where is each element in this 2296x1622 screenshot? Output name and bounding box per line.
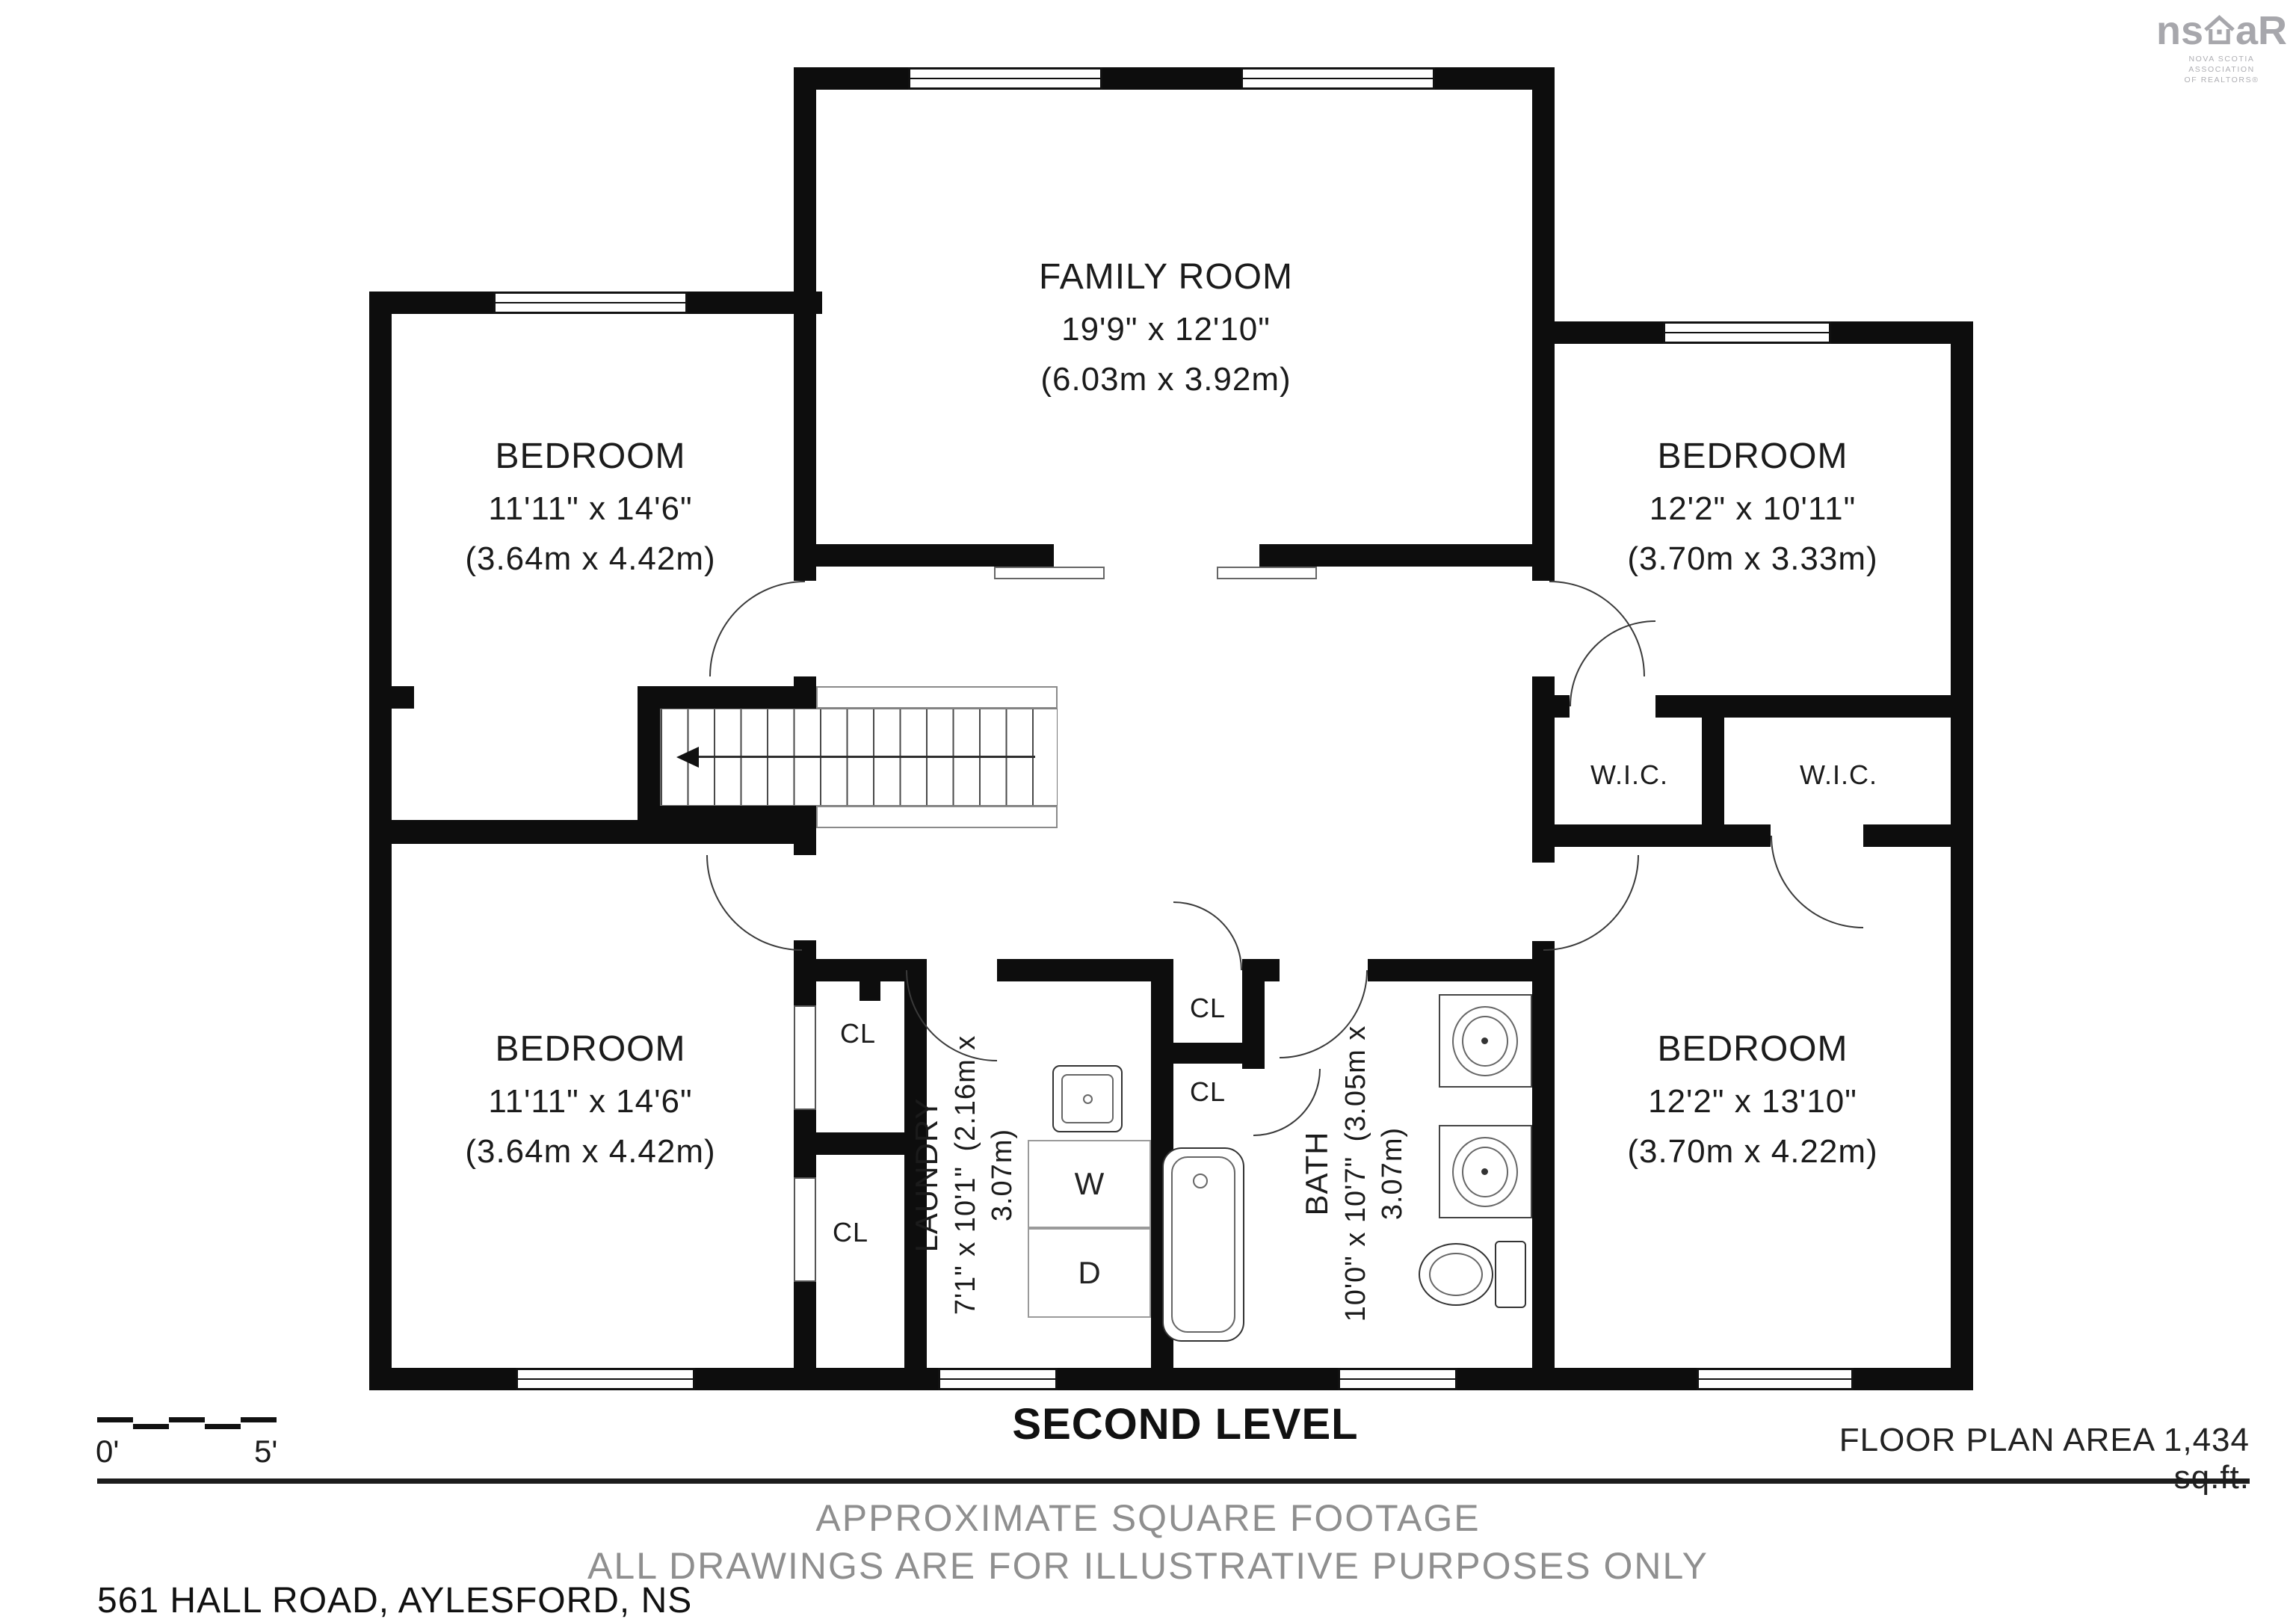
wall <box>997 959 1173 981</box>
nsar-logo: ns aR NOVA SCOTIA ASSOCIATION OF REALTOR… <box>2156 10 2287 86</box>
wall <box>369 686 414 709</box>
room-label-bedroom-top-right: BEDROOM 12'2" x 10'11" (3.70m x 3.33m) <box>1528 430 1977 585</box>
room-label-laundry: LAUNDRY 7'1" x 10'1" (2.16m x 3.07m) <box>907 1011 1019 1339</box>
floor-plan-page: W D FAMILY ROOM 19'9" x 12'10" (6.03m x … <box>0 0 2296 1622</box>
nsar-logo-brand: ns aR <box>2156 10 2287 51</box>
wall <box>1532 824 1771 847</box>
faucet-dot-icon <box>1481 1037 1488 1044</box>
window-icon <box>908 67 1102 90</box>
wall <box>1702 718 1724 824</box>
logo-subtext-2: OF REALTORS® <box>2156 75 2287 85</box>
drain-icon <box>1083 1094 1093 1104</box>
wall <box>369 1368 516 1390</box>
room-dim-metric: (3.70m x 4.22m) <box>1528 1127 1977 1177</box>
wall <box>1532 695 1570 718</box>
wall <box>794 1282 816 1390</box>
window-icon <box>1241 67 1435 90</box>
room-label-bath: BATH 10'0" x 10'7" (3.05m x 3.07m) <box>1297 1002 1416 1345</box>
toilet-tank-icon <box>1495 1241 1526 1308</box>
room-dim-imperial: 7'1" x 10'1" <box>950 1166 981 1315</box>
window-icon <box>1697 1368 1854 1390</box>
level-title: SECOND LEVEL <box>961 1399 1410 1449</box>
wall <box>638 686 816 709</box>
wall <box>1259 544 1555 567</box>
wall <box>1831 321 1973 344</box>
room-dim-metric: (3.64m x 4.42m) <box>366 534 815 585</box>
wic-right-label: W.I.C. <box>1741 759 1936 791</box>
room-label-family: FAMILY ROOM 19'9" x 12'10" (6.03m x 3.92… <box>867 250 1465 405</box>
scale-segment <box>241 1417 277 1422</box>
closet-label: CL <box>1173 993 1242 1024</box>
room-dim-imperial: 11'11" x 14'6" <box>366 484 815 534</box>
stair-direction-arrow <box>699 756 1035 758</box>
wall <box>794 544 1054 567</box>
cased-opening <box>994 567 1105 579</box>
room-dim-imperial: 10'0" x 10'7" <box>1340 1156 1371 1322</box>
closet-label: CL <box>815 1217 886 1248</box>
window-icon <box>1338 1368 1457 1390</box>
address-label: 561 HALL ROAD, AYLESFORD, NS <box>97 1580 692 1621</box>
room-dim-imperial: 11'11" x 14'6" <box>366 1077 815 1127</box>
room-dim-imperial: 19'9" x 12'10" <box>867 305 1465 355</box>
dryer-box: D <box>1028 1228 1151 1318</box>
dryer-label: D <box>1078 1255 1100 1291</box>
scale-bar <box>97 1417 277 1429</box>
door-arc <box>1543 855 1639 951</box>
wall <box>1173 1043 1242 1064</box>
cased-opening <box>1217 567 1317 579</box>
door-arc <box>1771 836 1863 928</box>
window-icon <box>493 292 688 314</box>
room-name: BEDROOM <box>366 1023 815 1077</box>
room-name: FAMILY ROOM <box>867 250 1465 305</box>
window-icon <box>1663 321 1831 344</box>
disclaimer-line-1: APPROXIMATE SQUARE FOOTAGE <box>0 1496 2296 1540</box>
house-icon <box>2202 10 2237 49</box>
wall <box>1242 959 1265 1069</box>
scale-end-label: 5' <box>254 1434 277 1470</box>
room-name: LAUNDRY <box>907 1011 948 1339</box>
room-label-bedroom-bottom-right: BEDROOM 12'2" x 13'10" (3.70m x 4.22m) <box>1528 1023 1977 1177</box>
vanity-icon <box>1439 1125 1532 1218</box>
wall <box>860 981 880 1001</box>
door-arc <box>1173 901 1242 970</box>
room-name: BEDROOM <box>366 430 815 484</box>
wic-left-label: W.I.C. <box>1558 759 1700 791</box>
wall <box>813 1132 904 1155</box>
scale-segment <box>133 1424 169 1429</box>
room-label-bedroom-top-left: BEDROOM 11'11" x 14'6" (3.64m x 4.42m) <box>366 430 815 585</box>
stair-arrow-head <box>676 747 699 768</box>
room-dim-metric: (6.03m x 3.92m) <box>867 355 1465 405</box>
room-dim-imperial: 12'2" x 13'10" <box>1528 1077 1977 1127</box>
washer-box: W <box>1028 1140 1151 1228</box>
closet-label: CL <box>822 1018 894 1049</box>
logo-text-right: aR <box>2235 10 2287 51</box>
wall <box>1863 824 1973 847</box>
room-dim-metric: (3.64m x 4.42m) <box>366 1127 815 1177</box>
room-name: BATH <box>1297 1002 1338 1345</box>
wall <box>1655 695 1973 718</box>
wall <box>1058 1368 1338 1390</box>
wall <box>695 1368 938 1390</box>
room-dim-imperial: 12'2" x 10'11" <box>1528 484 1977 534</box>
room-label-bedroom-bottom-left: BEDROOM 11'11" x 14'6" (3.64m x 4.42m) <box>366 1023 815 1177</box>
faucet-dot-icon <box>1481 1168 1488 1175</box>
scale-segment <box>97 1417 133 1422</box>
door-arc <box>706 855 802 951</box>
door-arc <box>709 581 805 676</box>
wall <box>638 806 816 828</box>
divider-line <box>97 1478 2250 1484</box>
scale-segment <box>205 1424 241 1429</box>
washer-label: W <box>1075 1166 1105 1202</box>
floor-area-label: FLOOR PLAN AREA 1,434 sq.ft. <box>1794 1422 2250 1496</box>
window-icon <box>938 1368 1058 1390</box>
closet-label: CL <box>1173 1076 1242 1108</box>
wall <box>1368 959 1555 981</box>
stair-railing <box>816 686 1058 709</box>
room-name: BEDROOM <box>1528 430 1977 484</box>
vanity-icon <box>1439 994 1532 1088</box>
faucet-icon <box>1193 1174 1208 1188</box>
logo-text-left: ns <box>2156 10 2203 51</box>
toilet-bowl-inner-icon <box>1429 1253 1483 1296</box>
wall <box>1102 67 1241 90</box>
room-dim-metric: (3.70m x 3.33m) <box>1528 534 1977 585</box>
closet-opening <box>794 1177 816 1282</box>
scale-segment <box>169 1417 205 1422</box>
scale-start-label: 0' <box>96 1434 119 1470</box>
stair-railing <box>816 806 1058 828</box>
wall <box>813 959 904 981</box>
window-icon <box>516 1368 695 1390</box>
wall <box>1457 1368 1697 1390</box>
room-name: BEDROOM <box>1528 1023 1977 1077</box>
logo-subtext-1: NOVA SCOTIA ASSOCIATION <box>2156 54 2287 75</box>
